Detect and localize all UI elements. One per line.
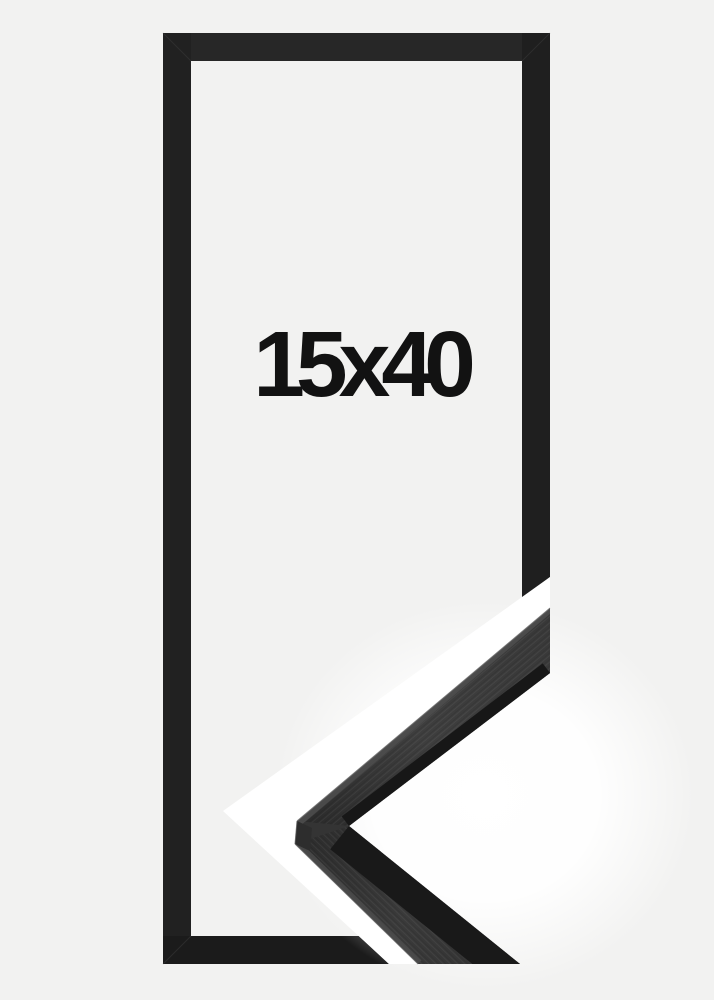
frame-right-bar-cut [522, 33, 550, 599]
size-label: 15x40 [253, 312, 472, 416]
product-image: 15x40 [0, 0, 714, 1000]
frame-top-bar [163, 33, 550, 61]
frame-left-bar [163, 33, 191, 964]
